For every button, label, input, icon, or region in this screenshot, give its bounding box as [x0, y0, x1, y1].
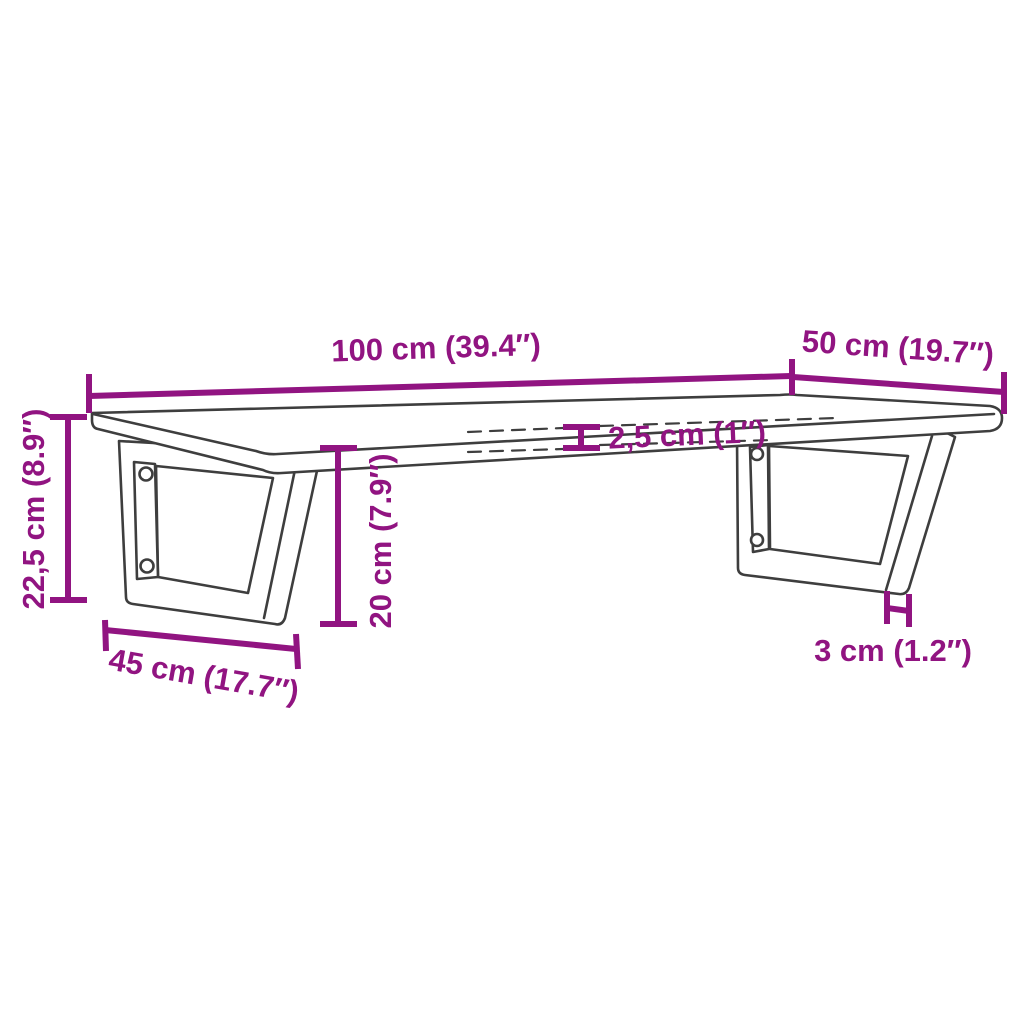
dimension-label-shelf-thickness: 2,5 cm (1″) [607, 414, 766, 456]
dimension-label-shelf-width: 100 cm (39.4″) [331, 327, 542, 369]
screw-hole-icon [751, 448, 763, 460]
dim-line-shelf-width [89, 376, 791, 396]
dim-tick [296, 634, 298, 669]
dimension-label-bracket-profile: 3 cm (1.2″) [814, 633, 972, 668]
product-dimension-diagram: 100 cm (39.4″) 50 cm (19.7″) 2,5 cm (1″)… [0, 0, 1024, 1024]
screw-hole-icon [140, 468, 153, 481]
dimension-label-bracket-base: 45 cm (17.7″) [106, 642, 301, 710]
diagram-canvas: 100 cm (39.4″) 50 cm (19.7″) 2,5 cm (1″)… [0, 0, 1024, 1024]
screw-hole-icon [141, 560, 154, 573]
dim-tick [105, 620, 106, 651]
dim-line-shelf-depth [793, 377, 1004, 392]
dim-line-bracket-profile [887, 608, 909, 611]
dimension-label-overall-height: 22,5 cm (8.9″) [16, 409, 51, 610]
right-bracket [737, 433, 955, 594]
furniture-outlines [92, 395, 1002, 625]
screw-hole-icon [751, 534, 763, 546]
dimension-label-bracket-height: 20 cm (7.9″) [363, 453, 398, 628]
dimension-label-shelf-depth: 50 cm (19.7″) [801, 323, 995, 371]
